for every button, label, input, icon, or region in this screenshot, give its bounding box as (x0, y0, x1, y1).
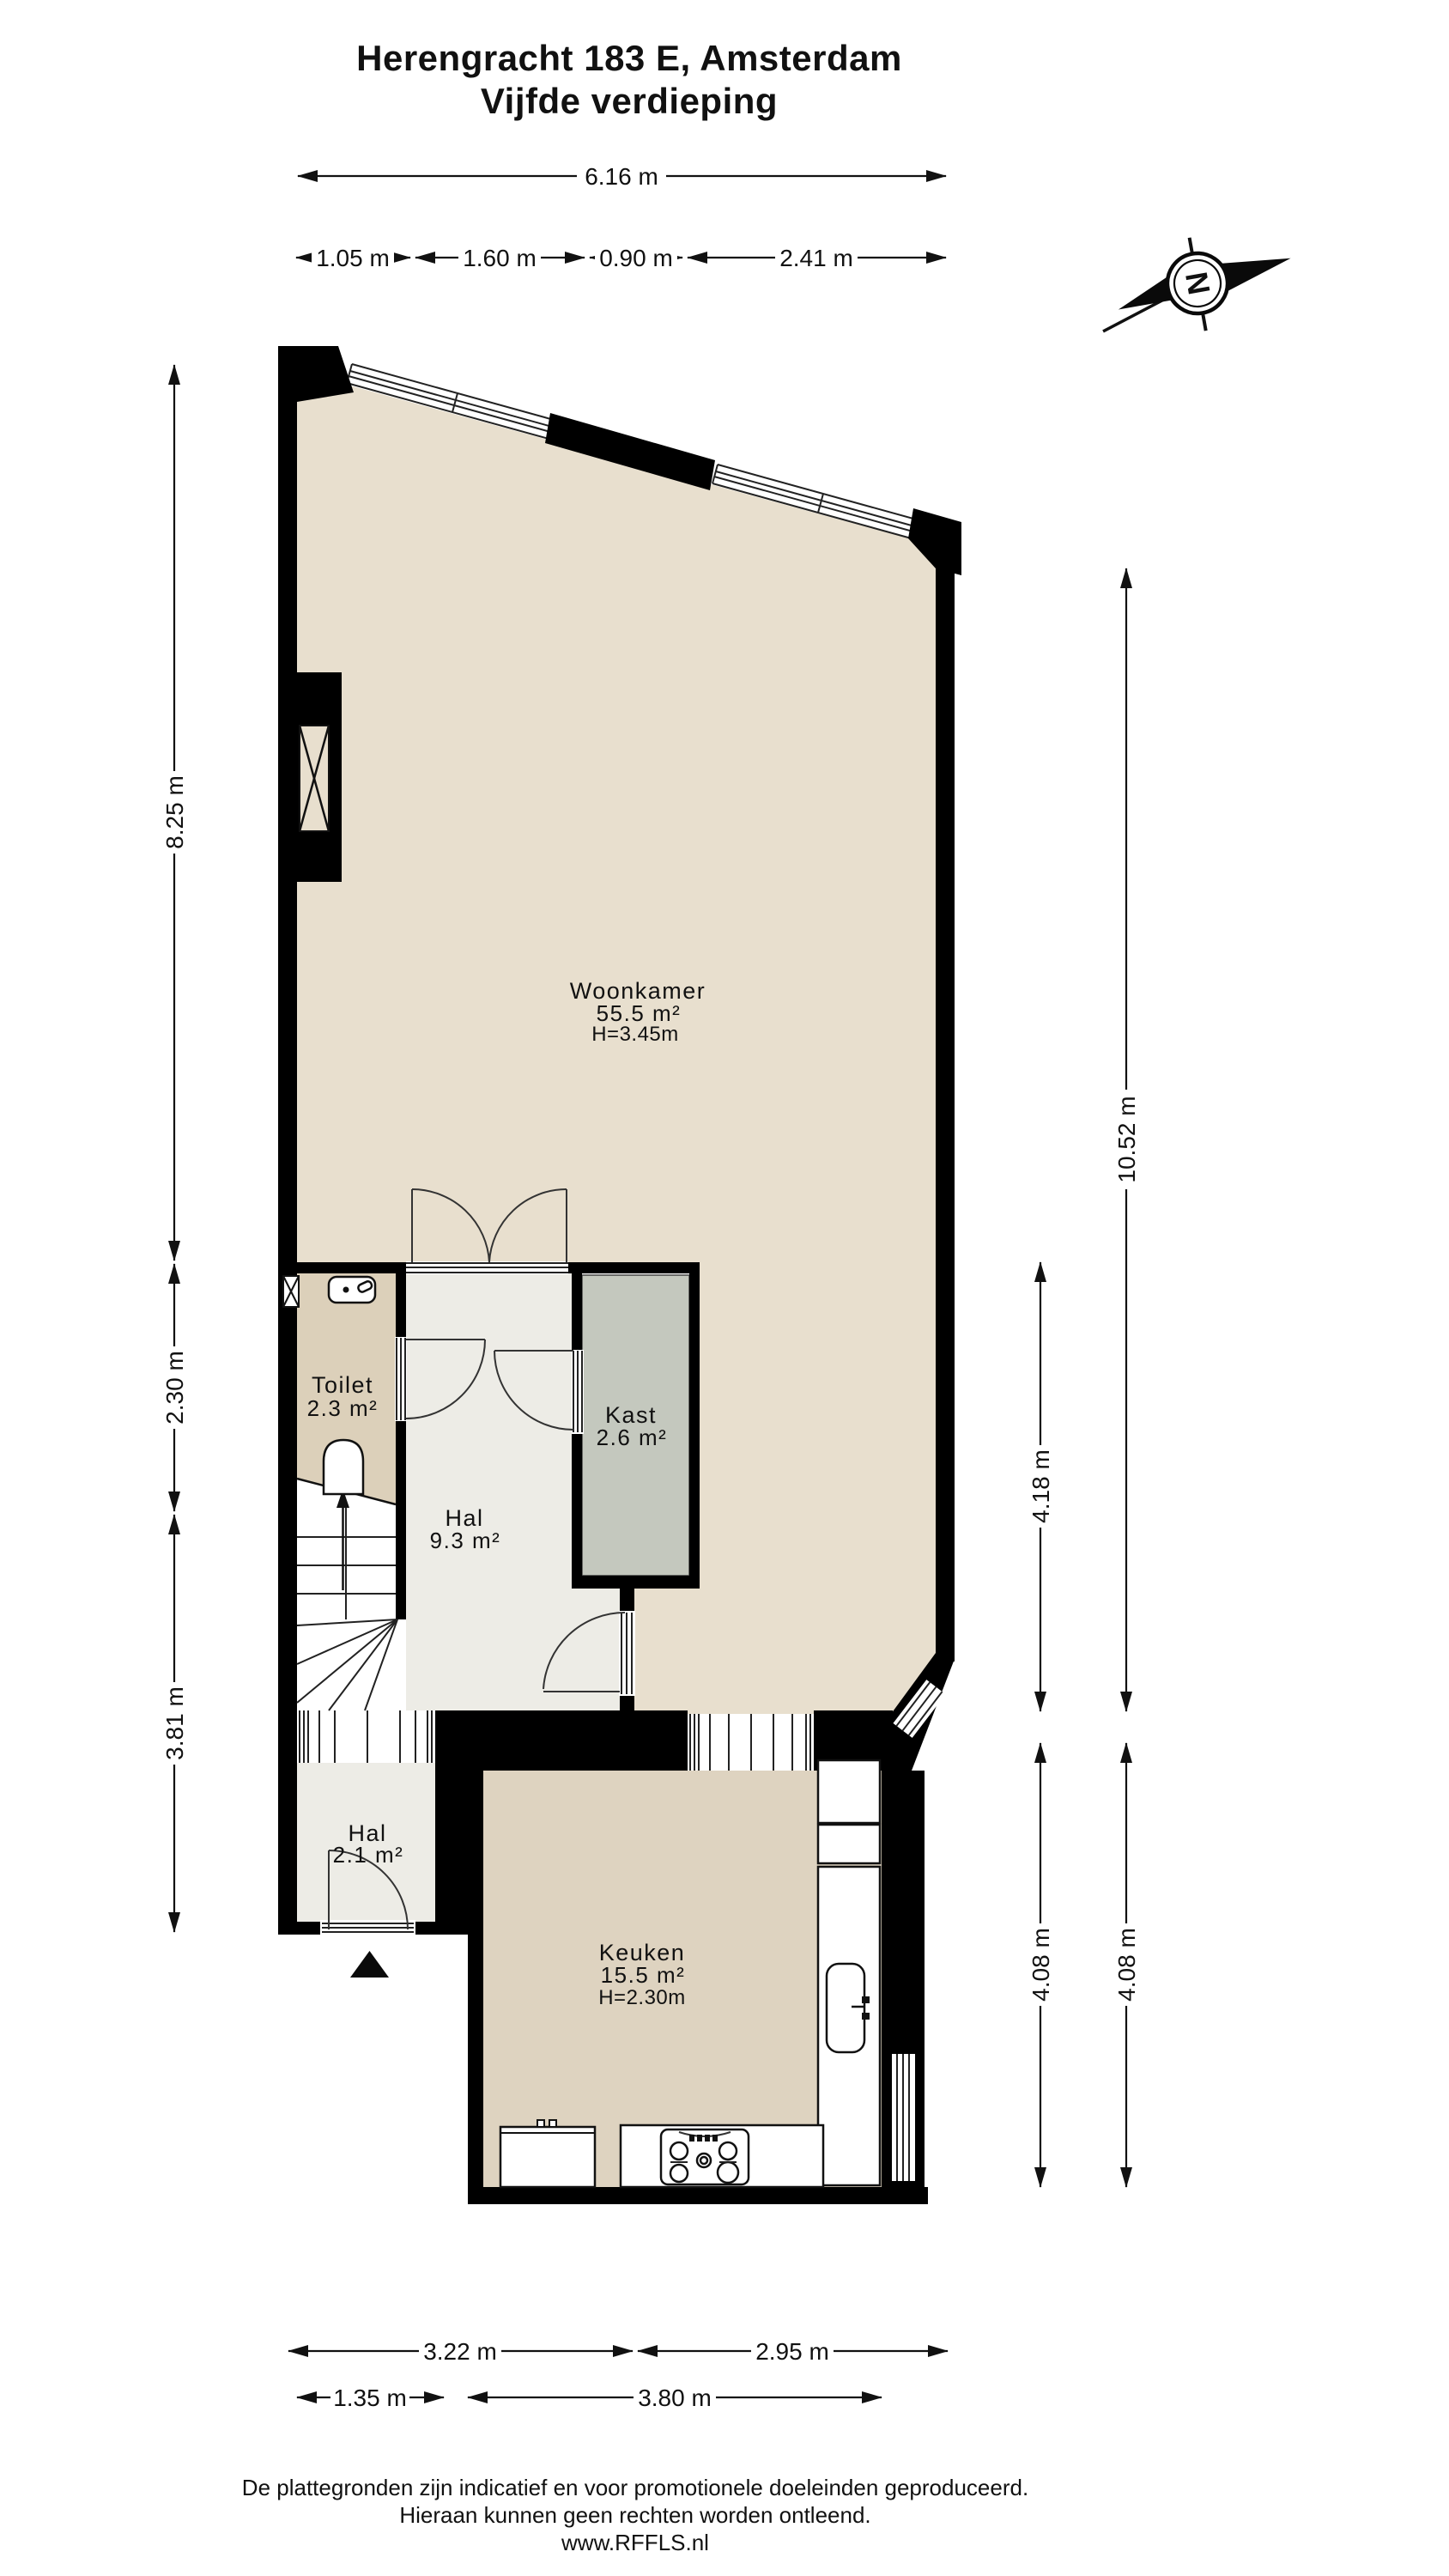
label-keuken-height: H=2.30m (598, 1986, 686, 2009)
svg-text:0.90 m: 0.90 m (599, 245, 673, 271)
kitchen-sink-icon (827, 1964, 870, 2052)
toilet-sink-icon (329, 1277, 375, 1303)
svg-text:2.95 m: 2.95 m (755, 2338, 829, 2365)
footer-line2: Hieraan kunnen geen rechten worden ontle… (399, 2502, 870, 2528)
page-title: Herengracht 183 E, Amsterdam Vijfde verd… (356, 38, 902, 121)
toilet-bowl-icon (324, 1440, 363, 1494)
dimension-top-seg4: 2.41 m (688, 245, 946, 271)
svg-text:4.08 m: 4.08 m (1028, 1928, 1054, 2002)
dimension-left-bottom: 3.81 m (161, 1515, 188, 1932)
svg-text:1.35 m: 1.35 m (333, 2385, 407, 2411)
label-hal-area: 9.3 m² (430, 1528, 501, 1553)
svg-text:3.80 m: 3.80 m (638, 2385, 712, 2411)
footer-disclaimer: De plattegronden zijn indicatief en voor… (242, 2475, 1028, 2555)
dimension-top-total: 6.16 m (298, 163, 946, 190)
dimension-left-top: 8.25 m (161, 365, 188, 1261)
window-kitchen-east (892, 2054, 915, 2181)
svg-text:4.18 m: 4.18 m (1028, 1449, 1054, 1523)
dimension-left-mid: 2.30 m (161, 1264, 188, 1511)
svg-text:2.30 m: 2.30 m (161, 1351, 188, 1425)
glazed-band-left (297, 1710, 435, 1763)
footer-line3: www.RFFLS.nl (561, 2530, 709, 2555)
label-woonkamer-height: H=3.45m (591, 1023, 679, 1046)
label-kast-area: 2.6 m² (597, 1425, 668, 1450)
label-toilet-area: 2.3 m² (307, 1395, 379, 1421)
chimney-shaft-icon (300, 726, 329, 831)
svg-text:4.08 m: 4.08 m (1113, 1928, 1140, 2002)
glazed-band-kitchen (688, 1714, 814, 1771)
svg-text:2.41 m: 2.41 m (779, 245, 853, 271)
svg-text:8.25 m: 8.25 m (161, 775, 188, 849)
dimension-top-seg3: 0.90 m (590, 245, 682, 271)
stove-icon (661, 2129, 749, 2184)
dimension-right-kitchen-inner: 4.08 m (1028, 1743, 1054, 2187)
floor-plan: Herengracht 183 E, Amsterdam Vijfde verd… (0, 0, 1449, 2576)
dimension-top-seg1: 1.05 m (296, 245, 410, 271)
svg-text:3.22 m: 3.22 m (423, 2338, 497, 2365)
dimension-bottom-left: 3.22 m (288, 2338, 633, 2365)
footer-line1: De plattegronden zijn indicatief en voor… (242, 2475, 1028, 2500)
svg-text:3.81 m: 3.81 m (161, 1686, 188, 1760)
svg-text:1.60 m: 1.60 m (463, 245, 537, 271)
kitchen-appliance-left (500, 2120, 595, 2187)
entrance-arrow-icon (350, 1951, 389, 1978)
kitchen-counter-right (818, 1760, 880, 2185)
dimension-bottom-right: 2.95 m (638, 2338, 948, 2365)
svg-text:1.05 m: 1.05 m (316, 245, 390, 271)
label-hal2-area: 2.1 m² (333, 1842, 404, 1868)
dimension-bottom-left2: 1.35 m (297, 2385, 444, 2411)
dimension-top-seg2: 1.60 m (415, 245, 585, 271)
label-keuken-area: 15.5 m² (601, 1962, 686, 1988)
dimension-bottom-right2: 3.80 m (468, 2385, 882, 2411)
kitchen-stove-counter (621, 2125, 823, 2187)
dimension-right-mid: 4.18 m (1028, 1262, 1054, 1711)
title-line1: Herengracht 183 E, Amsterdam (356, 38, 902, 78)
label-toilet: Toilet (312, 1372, 373, 1398)
svg-text:6.16 m: 6.16 m (585, 163, 658, 190)
north-arrow: N (1089, 221, 1300, 348)
svg-text:10.52 m: 10.52 m (1113, 1096, 1140, 1182)
duct-shaft-icon (283, 1276, 299, 1307)
title-line2: Vijfde verdieping (481, 81, 778, 121)
dimension-right-kitchen-outer: 4.08 m (1113, 1743, 1140, 2187)
dimension-right-total: 10.52 m (1113, 568, 1140, 1711)
